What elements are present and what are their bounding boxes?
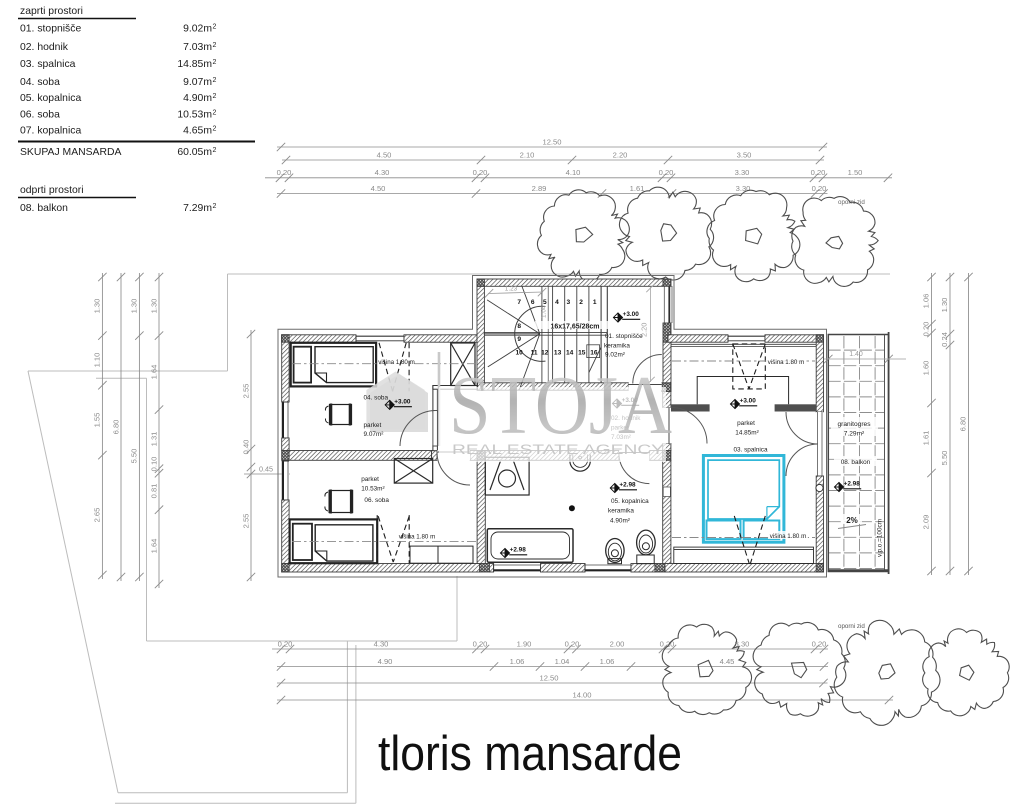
svg-text:keramika: keramika: [608, 508, 634, 515]
svg-text:0.20: 0.20: [277, 168, 292, 177]
svg-text:zaprti prostori: zaprti prostori: [20, 6, 83, 17]
svg-text:+3.00: +3.00: [394, 399, 411, 406]
svg-text:05. kopalnica: 05. kopalnica: [20, 93, 81, 104]
svg-text:11: 11: [531, 350, 538, 357]
svg-text:odprti prostori: odprti prostori: [20, 185, 84, 196]
svg-text:9.02m: 9.02m: [183, 24, 212, 35]
svg-text:04. soba: 04. soba: [20, 77, 60, 88]
svg-text:+3.00: +3.00: [740, 398, 757, 405]
svg-text:2.10: 2.10: [520, 150, 535, 159]
svg-text:1: 1: [593, 299, 597, 306]
svg-text:0.20: 0.20: [565, 639, 580, 648]
svg-text:1.61: 1.61: [630, 184, 645, 193]
svg-text:16: 16: [590, 350, 598, 357]
svg-text:05. kopalnica: 05. kopalnica: [611, 498, 649, 505]
svg-text:5.50: 5.50: [940, 451, 949, 466]
svg-text:6.80: 6.80: [959, 417, 968, 432]
svg-text:1.55: 1.55: [93, 413, 102, 428]
svg-text:1.30: 1.30: [940, 298, 949, 313]
svg-text:12: 12: [541, 350, 549, 357]
svg-text:+3.00: +3.00: [623, 311, 640, 318]
svg-text:tloris mansarde: tloris mansarde: [378, 727, 682, 781]
svg-text:4.45: 4.45: [720, 657, 735, 666]
svg-text:2: 2: [213, 93, 217, 100]
svg-text:4: 4: [555, 299, 559, 306]
svg-text:keramika: keramika: [604, 343, 630, 350]
svg-text:2: 2: [213, 110, 217, 117]
svg-text:2: 2: [213, 147, 217, 154]
svg-text:02. hodnik: 02. hodnik: [20, 42, 69, 53]
svg-text:2: 2: [213, 203, 217, 210]
svg-text:07. kopalnica: 07. kopalnica: [20, 126, 81, 137]
svg-text:2.55: 2.55: [241, 514, 250, 529]
svg-text:15: 15: [578, 350, 586, 357]
svg-text:0.20: 0.20: [659, 168, 674, 177]
svg-text:0.20: 0.20: [473, 168, 488, 177]
svg-text:SKUPAJ MANSARDA: SKUPAJ MANSARDA: [20, 147, 121, 158]
svg-text:granitogres: granitogres: [838, 421, 872, 428]
svg-text:16x17,65/28cm: 16x17,65/28cm: [550, 324, 599, 331]
svg-text:2: 2: [213, 77, 217, 84]
svg-text:10.53m: 10.53m: [177, 110, 212, 121]
svg-text:1.06: 1.06: [600, 657, 615, 666]
svg-text:2.65: 2.65: [93, 508, 102, 523]
svg-text:5: 5: [543, 299, 547, 306]
svg-text:12.50: 12.50: [539, 673, 558, 682]
svg-text:2.00: 2.00: [610, 639, 625, 648]
svg-text:3.30: 3.30: [735, 168, 750, 177]
svg-text:1.90: 1.90: [517, 639, 532, 648]
svg-text:2.09: 2.09: [922, 515, 931, 530]
svg-text:7: 7: [517, 299, 521, 306]
svg-text:1.64: 1.64: [149, 365, 158, 380]
svg-text:4.10: 4.10: [566, 168, 581, 177]
svg-text:5.50: 5.50: [130, 449, 139, 464]
svg-text:4.90: 4.90: [378, 657, 393, 666]
svg-text:4.50: 4.50: [371, 184, 386, 193]
svg-text:2: 2: [579, 299, 583, 306]
svg-text:7.29m: 7.29m: [183, 203, 212, 214]
svg-text:9.07m: 9.07m: [183, 77, 212, 88]
svg-text:4.90m²: 4.90m²: [610, 518, 630, 525]
svg-text:03. spalnica: 03. spalnica: [20, 59, 76, 70]
svg-text:1.04: 1.04: [540, 305, 547, 318]
svg-text:4.90m: 4.90m: [183, 93, 212, 104]
svg-text:0.20: 0.20: [473, 639, 488, 648]
svg-text:3.50: 3.50: [737, 150, 752, 159]
svg-text:0.20: 0.20: [812, 639, 827, 648]
svg-text:08. balkon: 08. balkon: [20, 203, 68, 214]
svg-text:01. stopnišče: 01. stopnišče: [20, 24, 81, 35]
svg-text:14.85m: 14.85m: [177, 59, 212, 70]
svg-text:parket: parket: [737, 420, 755, 427]
svg-text:14: 14: [566, 350, 574, 357]
svg-text:1.06: 1.06: [510, 657, 525, 666]
svg-text:1.30: 1.30: [149, 299, 158, 314]
svg-text:0.20: 0.20: [922, 322, 931, 337]
svg-text:2: 2: [213, 126, 217, 133]
svg-text:8: 8: [517, 323, 521, 330]
svg-text:2: 2: [213, 59, 217, 66]
svg-text:1.31: 1.31: [149, 432, 158, 447]
svg-text:01. stopnišče: 01. stopnišče: [605, 333, 643, 340]
svg-text:STOJA: STOJA: [449, 359, 672, 452]
svg-text:2: 2: [213, 42, 217, 49]
svg-text:6.80: 6.80: [111, 420, 120, 435]
svg-text:12.50: 12.50: [542, 137, 561, 146]
svg-text:0.20: 0.20: [811, 168, 826, 177]
svg-text:1.40: 1.40: [849, 351, 863, 358]
svg-text:0.10: 0.10: [149, 457, 158, 472]
svg-text:7.29m²: 7.29m²: [844, 431, 865, 438]
svg-text:2: 2: [213, 24, 217, 31]
svg-text:oporni zid: oporni zid: [838, 623, 865, 630]
svg-text:+2.98: +2.98: [619, 482, 636, 489]
svg-text:9.02m²: 9.02m²: [605, 352, 625, 359]
svg-text:1.64: 1.64: [149, 539, 158, 554]
svg-text:parket: parket: [364, 422, 382, 429]
svg-text:4.65m: 4.65m: [183, 126, 212, 137]
svg-text:+2.98: +2.98: [510, 547, 527, 554]
svg-text:3: 3: [566, 299, 570, 306]
svg-text:13: 13: [554, 350, 562, 357]
svg-text:4.30: 4.30: [375, 168, 390, 177]
svg-text:0.24: 0.24: [940, 332, 949, 347]
svg-text:06. soba: 06. soba: [20, 110, 60, 121]
svg-text:1.30: 1.30: [130, 299, 139, 314]
svg-text:1.61: 1.61: [922, 431, 931, 446]
svg-text:4.50: 4.50: [377, 150, 392, 159]
svg-text:1.50: 1.50: [848, 168, 863, 177]
svg-text:60.05m: 60.05m: [177, 147, 212, 158]
svg-text:višina 1.80 m: višina 1.80 m: [399, 534, 435, 541]
svg-text:10.53m²: 10.53m²: [361, 486, 384, 493]
svg-text:2.55: 2.55: [241, 384, 250, 399]
svg-text:14.00: 14.00: [572, 690, 591, 699]
svg-text:0.45: 0.45: [259, 465, 273, 474]
svg-text:14.85m²: 14.85m²: [735, 430, 758, 437]
svg-text:4.30: 4.30: [374, 639, 389, 648]
svg-text:1.23: 1.23: [505, 286, 518, 293]
svg-text:2.89: 2.89: [532, 184, 547, 193]
svg-text:v.p.o.=100cm: v.p.o.=100cm: [877, 519, 884, 557]
svg-text:0.40: 0.40: [241, 440, 250, 455]
svg-text:9.07m²: 9.07m²: [364, 431, 384, 438]
svg-text:1.60: 1.60: [922, 361, 931, 376]
svg-text:3.30: 3.30: [736, 184, 751, 193]
svg-text:1.10: 1.10: [93, 353, 102, 368]
svg-text:9: 9: [517, 336, 521, 343]
svg-text:08. balkon: 08. balkon: [841, 459, 871, 466]
svg-text:1.04: 1.04: [555, 657, 570, 666]
svg-text:06. soba: 06. soba: [364, 497, 389, 504]
svg-text:+2.98: +2.98: [844, 481, 861, 488]
svg-text:0.81: 0.81: [149, 484, 158, 499]
svg-text:04. soba: 04. soba: [364, 395, 389, 402]
svg-text:0.20: 0.20: [278, 639, 293, 648]
svg-text:1.30: 1.30: [93, 299, 102, 314]
svg-text:6: 6: [531, 299, 535, 306]
svg-text:parket: parket: [361, 476, 379, 483]
svg-text:2.20: 2.20: [613, 150, 628, 159]
svg-text:03. spalnica: 03. spalnica: [733, 447, 768, 454]
svg-text:višina 1.80 m: višina 1.80 m: [768, 359, 804, 366]
svg-text:1.06: 1.06: [922, 294, 931, 309]
svg-text:REAL ESTATE AGENCY: REAL ESTATE AGENCY: [452, 442, 664, 457]
svg-text:2%: 2%: [846, 516, 858, 525]
svg-text:10: 10: [516, 350, 524, 357]
svg-text:višina 1.80 m: višina 1.80 m: [770, 533, 806, 540]
svg-text:0.20: 0.20: [812, 184, 827, 193]
svg-text:7.03m: 7.03m: [183, 42, 212, 53]
